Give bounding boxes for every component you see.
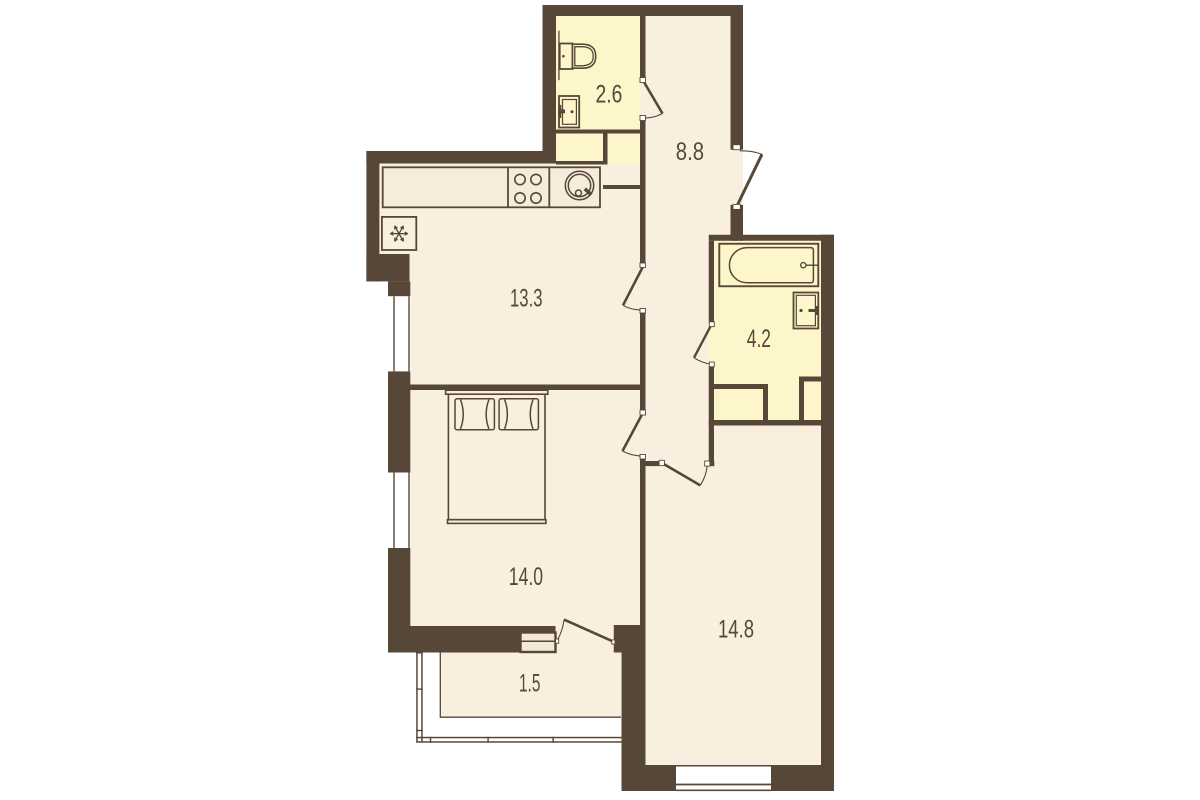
svg-text:1.5: 1.5 <box>519 670 540 698</box>
svg-text:14.8: 14.8 <box>718 616 754 644</box>
svg-text:14.0: 14.0 <box>509 563 543 591</box>
svg-text:2.6: 2.6 <box>596 80 623 108</box>
svg-text:13.3: 13.3 <box>510 284 543 312</box>
svg-text:8.8: 8.8 <box>676 138 704 166</box>
svg-text:4.2: 4.2 <box>747 325 771 353</box>
